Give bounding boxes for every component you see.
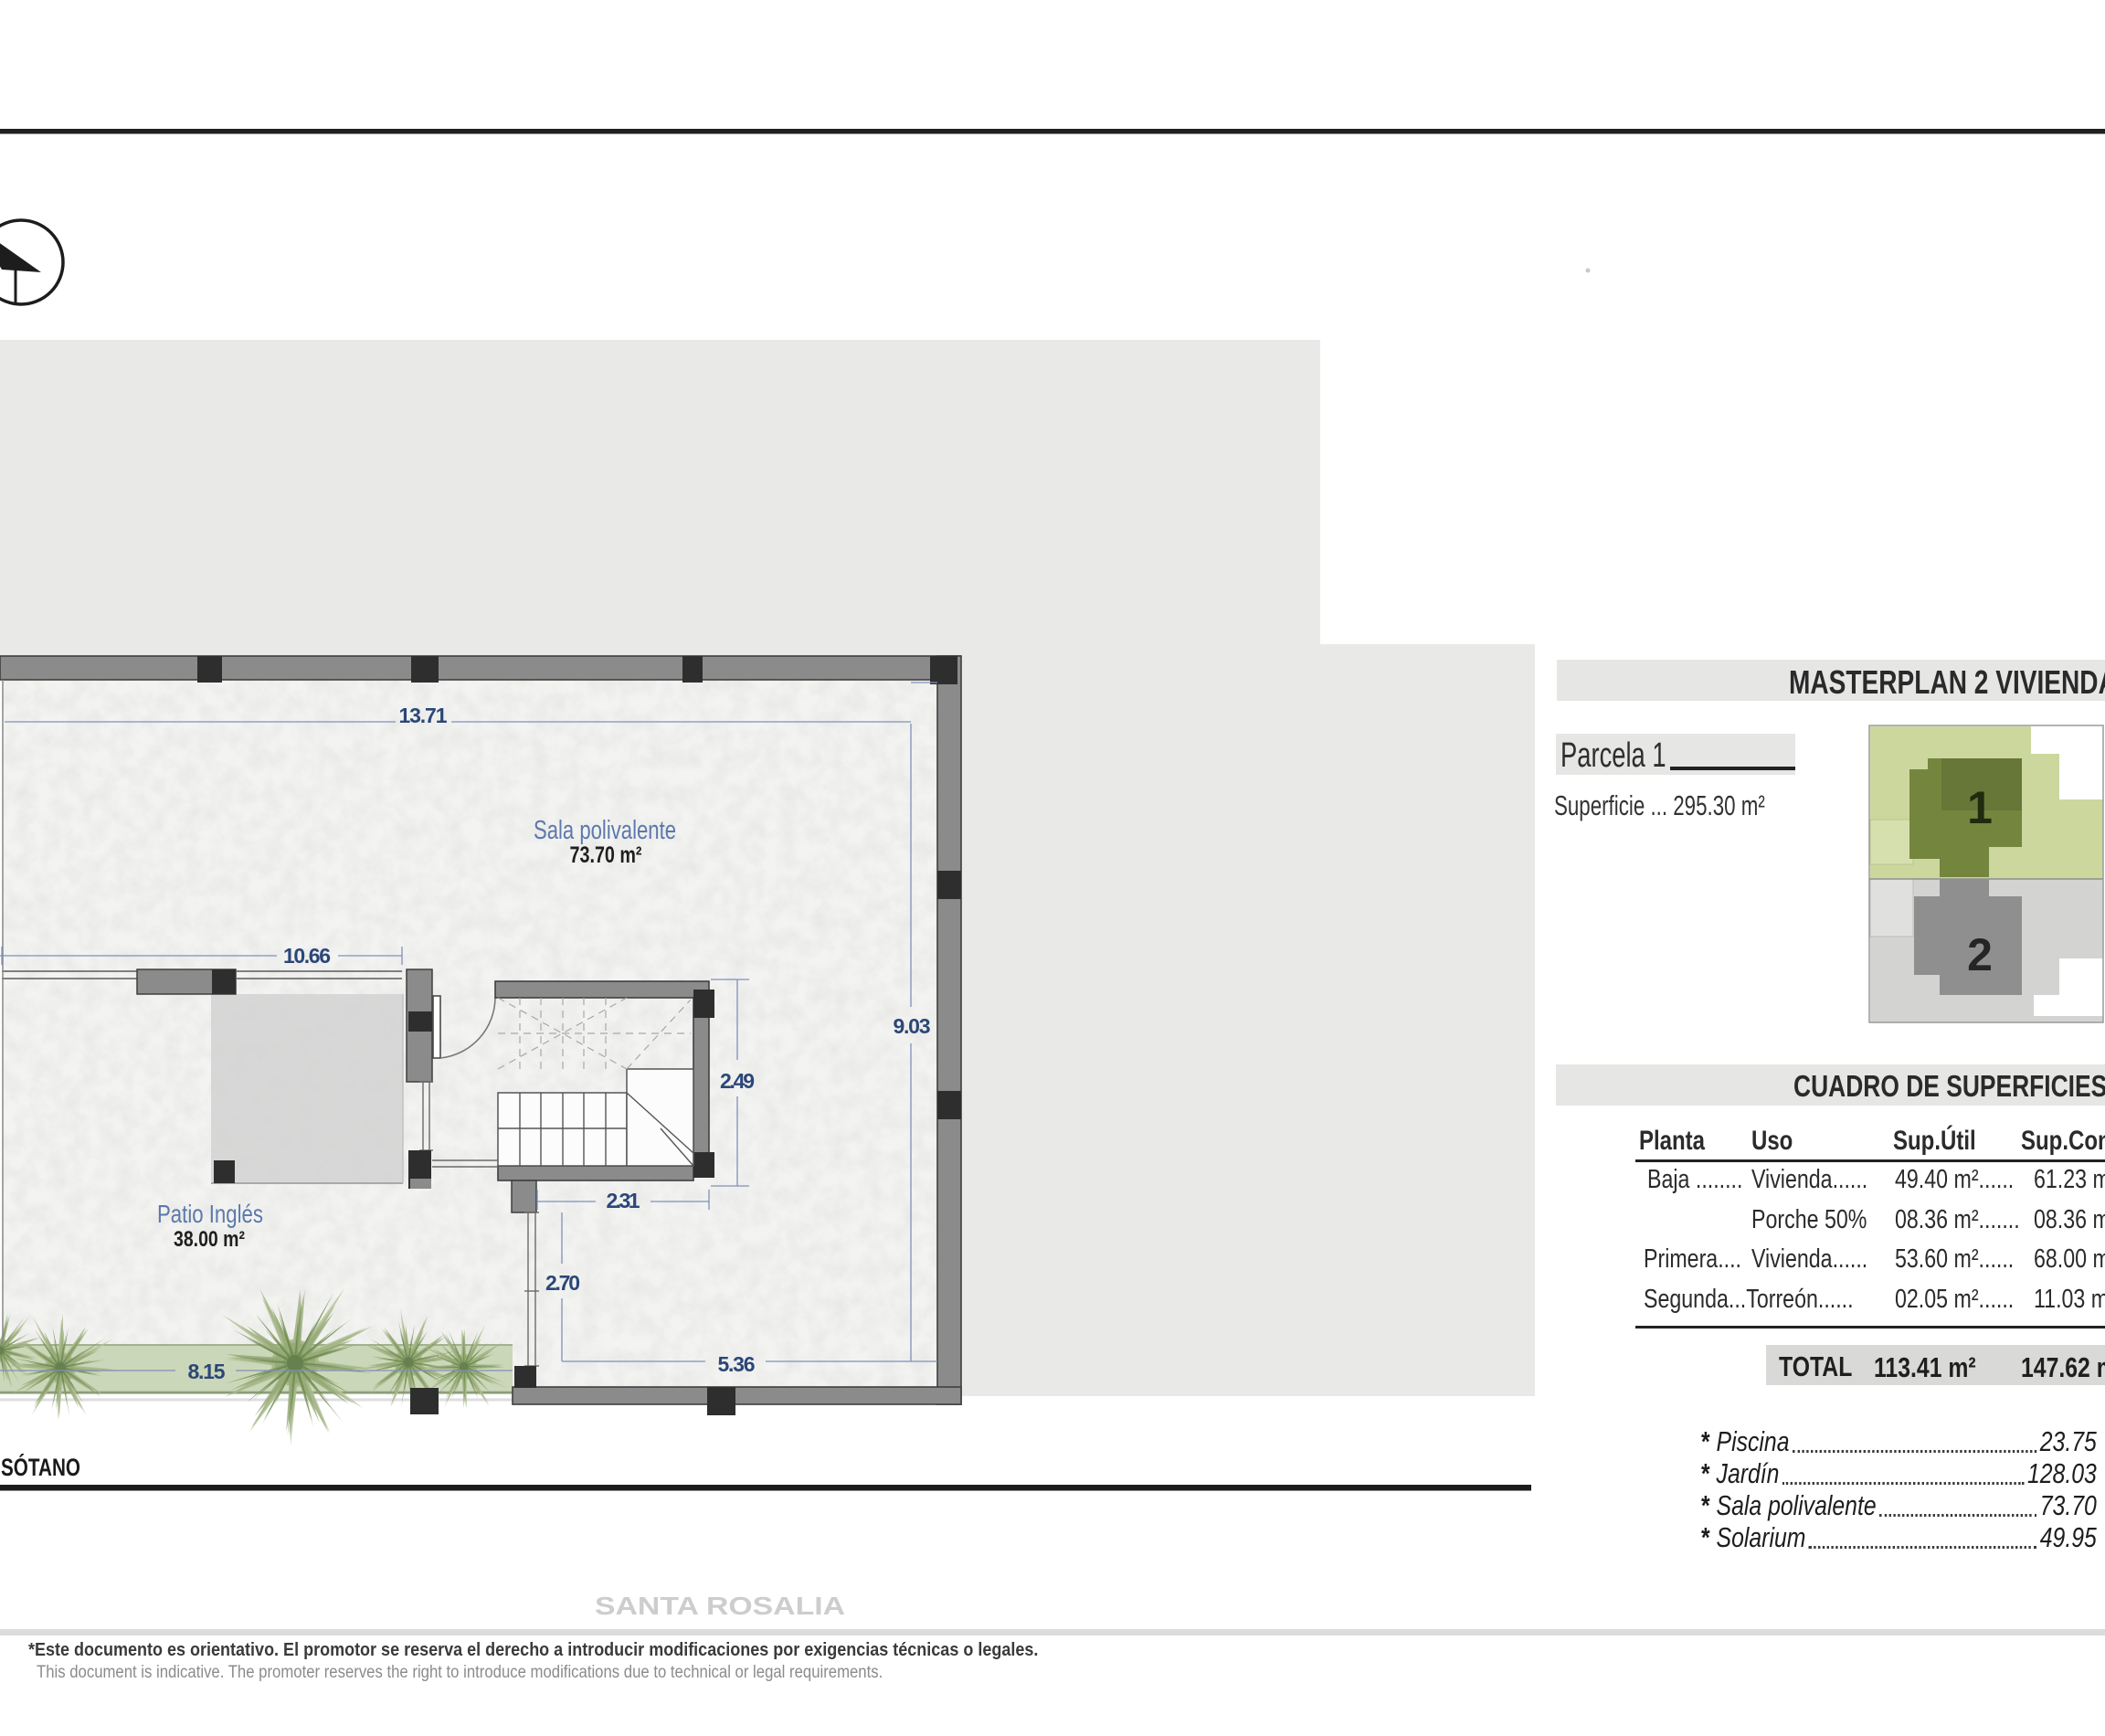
svg-text:SÓTANO: SÓTANO [1, 1453, 80, 1481]
svg-text:5.36: 5.36 [718, 1352, 756, 1376]
svg-text:SANTA ROSALIA: SANTA ROSALIA [595, 1592, 845, 1620]
svg-text:1: 1 [1967, 782, 1993, 833]
svg-text:38.00 m²: 38.00 m² [174, 1227, 245, 1252]
svg-text:8.15: 8.15 [188, 1360, 226, 1383]
svg-text:9.03: 9.03 [894, 1014, 931, 1038]
svg-text:13.71: 13.71 [399, 704, 448, 727]
svg-text:Patio Inglés: Patio Inglés [157, 1200, 263, 1228]
svg-text:2.70: 2.70 [545, 1271, 580, 1295]
svg-text:Sala polivalente: Sala polivalente [534, 816, 676, 845]
svg-text:2: 2 [1967, 929, 1993, 980]
svg-text:2.49: 2.49 [720, 1069, 755, 1093]
svg-text:2.31: 2.31 [607, 1189, 640, 1212]
svg-text:73.70 m²: 73.70 m² [570, 842, 642, 868]
svg-text:10.66: 10.66 [283, 944, 331, 968]
